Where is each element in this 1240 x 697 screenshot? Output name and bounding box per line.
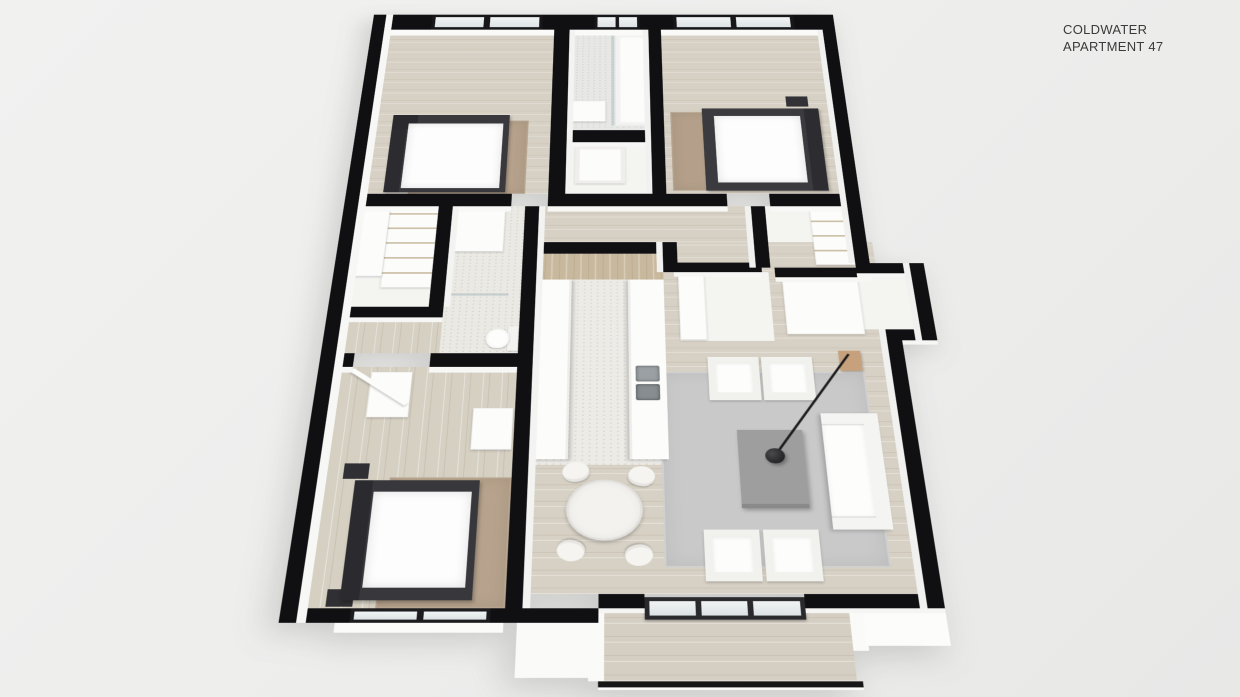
pocket-hall-floor xyxy=(336,317,442,353)
bedroom3-nightstand-top xyxy=(343,463,370,478)
bathroom2-vanity xyxy=(453,209,505,251)
sliding-door-pane xyxy=(753,601,801,615)
bedroom2-nightstand xyxy=(785,96,808,106)
living-tall-cabinet xyxy=(678,275,707,340)
corridor-floor xyxy=(538,206,762,242)
window-pane xyxy=(676,17,731,27)
sliding-door-pane xyxy=(649,601,696,615)
plan-title-line1: COLDWATER xyxy=(1063,21,1163,38)
window-pane xyxy=(597,17,615,27)
living-sideboard xyxy=(782,279,865,334)
wall-bath-bottom xyxy=(548,194,728,212)
wall-bedroom1-bottom xyxy=(357,194,512,212)
plan-title: COLDWATER APARTMENT 47 xyxy=(1063,21,1163,55)
armchair-bottom-right xyxy=(763,530,824,582)
sliding-door-pane xyxy=(701,601,748,615)
bedroom1-window xyxy=(430,15,543,36)
plan-title-line2: APARTMENT 47 xyxy=(1063,38,1163,55)
window-pane xyxy=(619,17,637,27)
armchair-bottom-left xyxy=(704,530,763,582)
bedroom1-mattress xyxy=(401,123,504,188)
armchair-top-left xyxy=(707,357,761,400)
wall-kitchen-top xyxy=(524,242,668,254)
sliding-door xyxy=(644,597,806,619)
bathroom1-shower-glass xyxy=(611,33,614,125)
window-pane xyxy=(423,612,486,620)
bedroom3-mattress xyxy=(362,492,472,588)
floorplan-scene: COLDWATER APARTMENT 47 xyxy=(0,0,1240,697)
closet-shelf-unit xyxy=(380,209,438,287)
bathroom1-sink-cabinet xyxy=(572,101,606,122)
bathroom1-window xyxy=(595,15,640,36)
window-pane xyxy=(354,612,418,620)
armchair-top-right xyxy=(761,357,817,400)
bathroom2-shower-glass xyxy=(445,293,509,295)
floorplan xyxy=(268,15,1008,690)
window-pane xyxy=(435,17,485,27)
wall-kitchen-right xyxy=(656,242,678,272)
balcony-railing-base xyxy=(598,687,864,690)
coffee-table xyxy=(737,430,810,508)
bedroom3-wardrobe-right xyxy=(470,408,513,450)
window-pane xyxy=(736,17,791,27)
wall-bedroom3-bottom-right xyxy=(490,608,599,623)
exterior-white-left xyxy=(515,623,603,678)
dining-table xyxy=(565,480,643,541)
kitchen-backsplash-wood-wall xyxy=(536,254,663,280)
bedroom3-window-sill xyxy=(333,623,503,633)
bedroom2-window xyxy=(673,15,796,36)
kitchen-sink-basin-bottom xyxy=(636,384,660,400)
bedroom3-bottom-window xyxy=(349,608,490,623)
kitchen-sink-basin-top xyxy=(636,366,660,382)
vanity-cabinet xyxy=(575,147,626,184)
floor-lamp-shade xyxy=(765,448,786,463)
wall-living-bottom-left xyxy=(598,594,644,613)
window-pane xyxy=(490,17,540,27)
bedroom2-mattress xyxy=(714,116,808,183)
exterior-white-right xyxy=(862,608,951,646)
